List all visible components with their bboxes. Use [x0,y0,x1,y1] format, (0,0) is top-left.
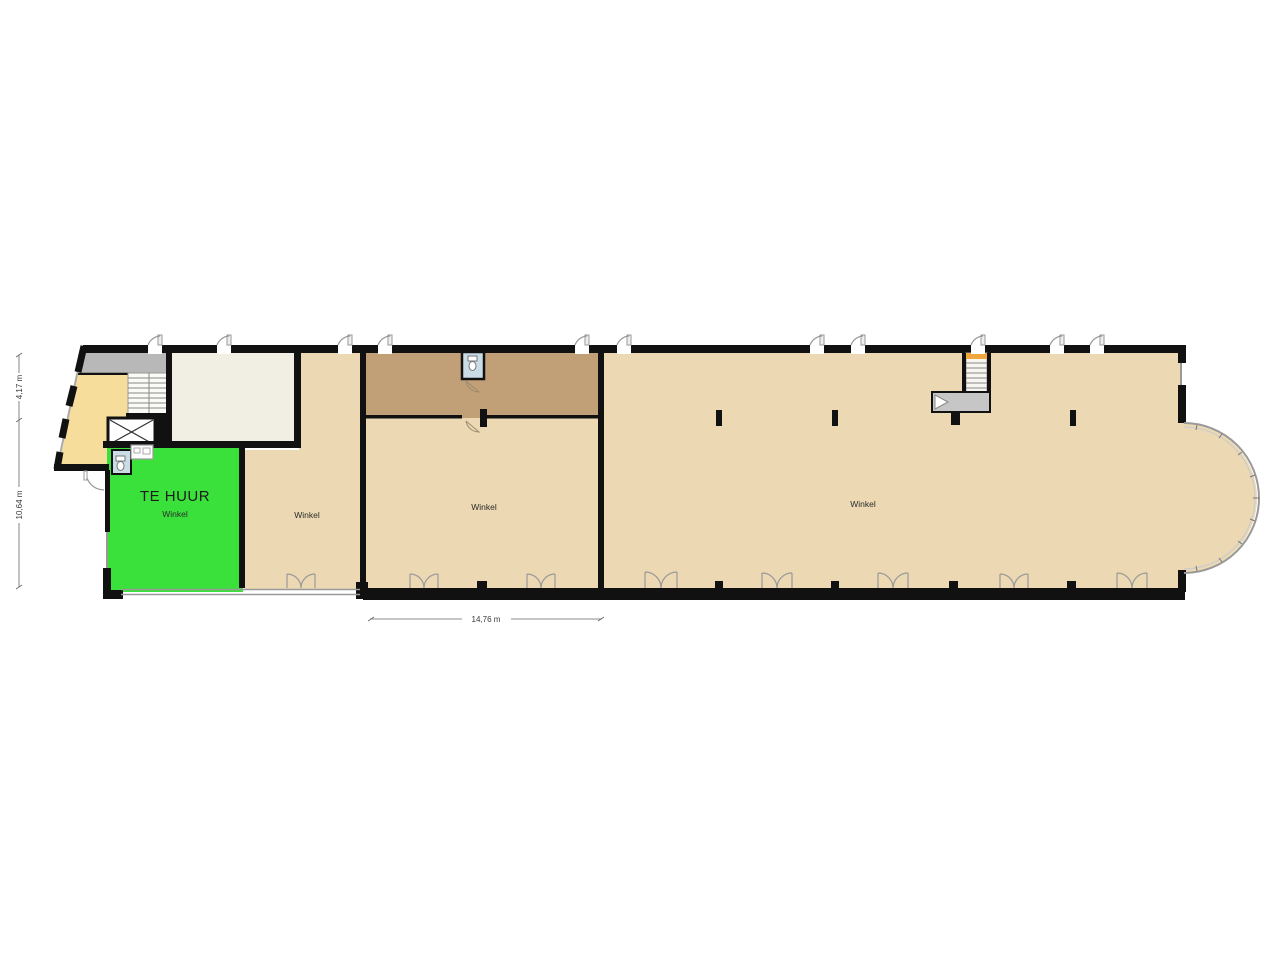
door [338,335,352,354]
te-huur-label: TE HUUR [140,488,210,505]
door [810,335,824,354]
door [971,335,985,354]
entrance-walkway [78,351,170,375]
door [148,335,162,354]
toilet-left [112,450,131,474]
floorplan-page: TE HUUR Winkel Winkel Winkel Winkel 4,17… [0,0,1280,960]
stairwell-left [126,373,172,418]
floorplan-drawing: TE HUUR Winkel Winkel Winkel Winkel 4,17… [0,0,1280,960]
door [378,335,392,354]
dimension-lower-left-label: 10,64 m [15,490,24,519]
dimension-upper-left-label: 4,17 m [15,374,24,399]
door [575,335,589,354]
sink-counter [131,445,153,459]
door [1090,335,1104,354]
back-room [172,353,294,443]
door [851,335,865,354]
door [217,335,231,354]
te-huur-sublabel: Winkel [162,509,188,519]
pillar [951,412,960,425]
floor-areas [59,351,1257,592]
winkel-right-label: Winkel [850,499,876,509]
hallway-exit-door [84,471,104,490]
door [617,335,631,354]
winkel-left-label: Winkel [294,510,320,520]
winkel-middle-label: Winkel [471,502,497,512]
dimension-bottom-middle-label: 14,76 m [472,615,501,624]
door [1050,335,1064,354]
room-winkel-right [604,353,1257,590]
